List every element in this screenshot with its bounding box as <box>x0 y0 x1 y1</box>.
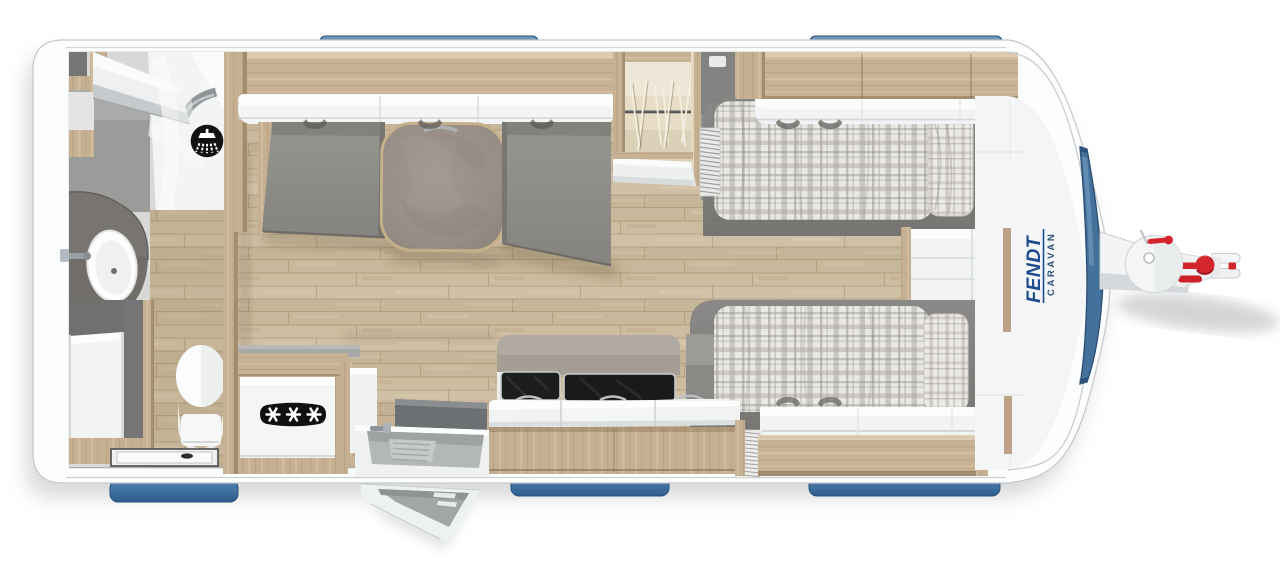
svg-text:FENDT: FENDT <box>1023 234 1045 303</box>
svg-text:CARAVAN: CARAVAN <box>1046 232 1057 296</box>
